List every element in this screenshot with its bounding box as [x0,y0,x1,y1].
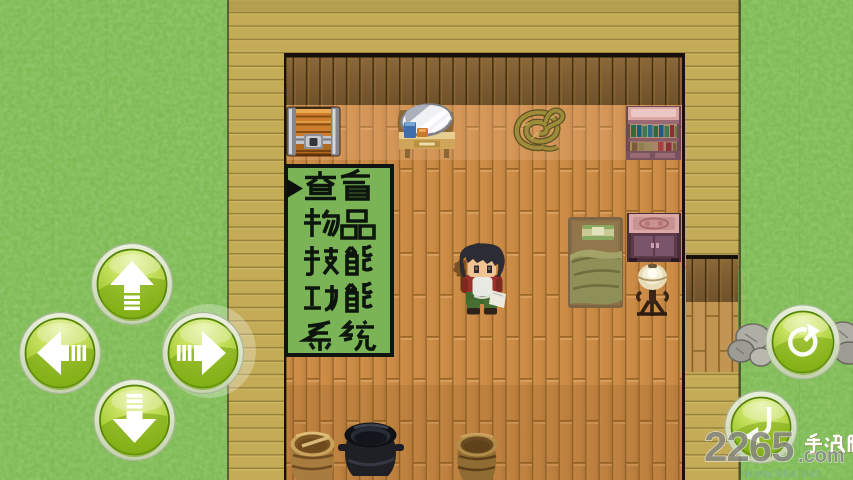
svg-text:www.kkx.net: www.kkx.net [743,468,821,480]
svg-text:.com: .com [798,445,845,467]
svg-text:2265: 2265 [704,423,794,470]
